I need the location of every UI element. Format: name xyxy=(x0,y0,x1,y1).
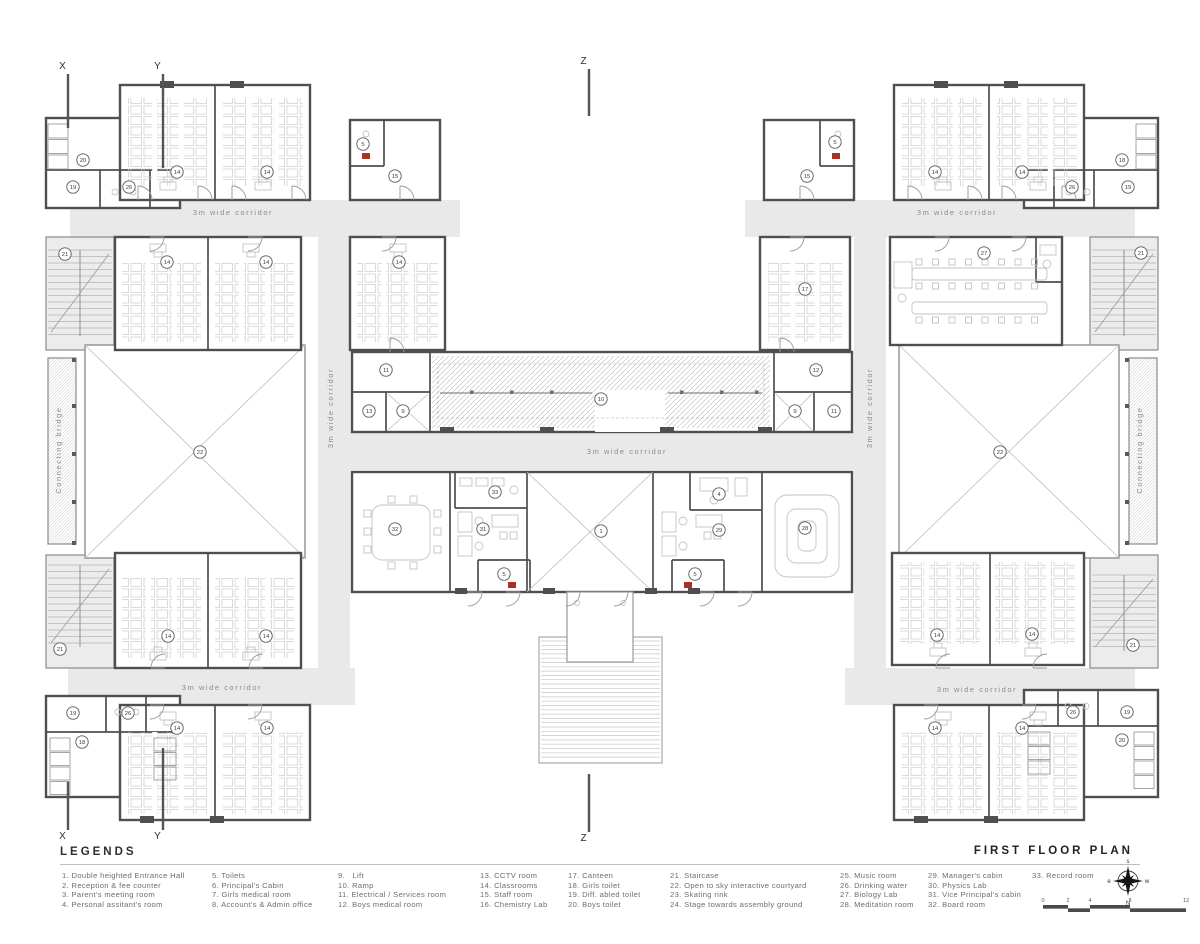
room-marker: 14 xyxy=(1016,166,1028,178)
room-marker: 1 xyxy=(595,525,607,537)
legend-item: 11. Electrical / Services room xyxy=(338,890,446,900)
svg-text:3m wide corridor: 3m wide corridor xyxy=(865,368,874,448)
svg-text:19: 19 xyxy=(1125,185,1132,191)
legend-item: 7. Girls medical room xyxy=(212,890,313,900)
legend-item: 20. Boys toilet xyxy=(568,900,641,910)
room-marker: 22 xyxy=(194,446,206,458)
room-marker: 15 xyxy=(801,170,813,182)
svg-text:31: 31 xyxy=(480,527,487,533)
svg-text:X: X xyxy=(59,61,67,72)
svg-text:21: 21 xyxy=(1130,643,1137,649)
room-marker: 11 xyxy=(380,364,392,376)
scale-bar: 024812 xyxy=(1041,898,1189,912)
svg-text:18: 18 xyxy=(79,740,86,746)
room-marker: 32 xyxy=(389,523,401,535)
room-marker: 26 xyxy=(1066,181,1078,193)
legend-column: 17. Canteen18. Girls toilet19. Diff. abl… xyxy=(568,871,641,909)
room-marker: 26 xyxy=(122,707,134,719)
legend-column: 5. Toilets6. Principal's Cabin7. Girls m… xyxy=(212,871,313,909)
room-marker: 19 xyxy=(67,707,79,719)
room-marker: 18 xyxy=(76,736,88,748)
svg-text:3m wide corridor: 3m wide corridor xyxy=(917,208,997,217)
svg-text:20: 20 xyxy=(80,158,87,164)
legend-item: 1. Double heighted Entrance Hall xyxy=(62,871,185,881)
svg-text:10: 10 xyxy=(598,397,605,403)
svg-text:3m wide corridor: 3m wide corridor xyxy=(193,208,273,217)
svg-text:11: 11 xyxy=(383,368,389,374)
svg-text:12: 12 xyxy=(1183,898,1189,904)
room-marker: 12 xyxy=(810,364,822,376)
legend-item: 8. Account's & Admin office xyxy=(212,900,313,910)
room-marker: 14 xyxy=(162,630,174,642)
svg-text:8: 8 xyxy=(1128,898,1131,904)
room-marker: 20 xyxy=(77,154,89,166)
floor-plan-drawing: 3m wide corridor3m wide corridor3m wide … xyxy=(0,0,1200,845)
room-marker: 5 xyxy=(498,568,510,580)
svg-text:14: 14 xyxy=(164,260,171,266)
legend-item: 19. Diff. abled toilet xyxy=(568,890,641,900)
courtyard-right xyxy=(899,345,1119,558)
room-marker: 21 xyxy=(54,643,66,655)
svg-text:3m wide corridor: 3m wide corridor xyxy=(937,685,1017,694)
legend-column: 13. CCTV room14. Classrooms15. Staff roo… xyxy=(480,871,548,909)
svg-text:14: 14 xyxy=(174,170,181,176)
svg-text:15: 15 xyxy=(804,174,811,180)
room-marker: 14 xyxy=(393,256,405,268)
svg-text:1: 1 xyxy=(599,529,602,535)
legend-panel: LEGENDS FIRST FLOOR PLAN 1. Double heigh… xyxy=(0,845,1200,944)
room-marker: 28 xyxy=(799,522,811,534)
room-marker: 31 xyxy=(477,523,489,535)
svg-text:19: 19 xyxy=(1124,710,1131,716)
svg-text:9: 9 xyxy=(401,409,404,415)
room-marker: 19 xyxy=(67,181,79,193)
svg-text:14: 14 xyxy=(934,633,941,639)
svg-text:4: 4 xyxy=(1088,898,1091,904)
room-marker: 26 xyxy=(1067,706,1079,718)
room-marker: 14 xyxy=(261,722,273,734)
room-marker: 27 xyxy=(978,247,990,259)
legend-item: 32. Board room xyxy=(928,900,1021,910)
room-marker: 17 xyxy=(799,283,811,295)
legend-item: 27. Biology Lab xyxy=(840,890,914,900)
room-marker: 14 xyxy=(171,722,183,734)
stage-steps xyxy=(539,592,662,763)
room-marker: 19 xyxy=(1121,706,1133,718)
svg-text:14: 14 xyxy=(396,260,403,266)
legend-item: 2. Reception & fee counter xyxy=(62,881,185,891)
svg-text:14: 14 xyxy=(264,170,271,176)
legend-item: 13. CCTV room xyxy=(480,871,548,881)
room-marker: 21 xyxy=(1127,639,1139,651)
room-marker: 21 xyxy=(1135,247,1147,259)
room-marker: 5 xyxy=(829,136,841,148)
svg-text:33: 33 xyxy=(492,490,499,496)
legend-column: 29. Manager's cabin30. Physics Lab31. Vi… xyxy=(928,871,1021,909)
legend-item: 24. Stage towards assembly ground xyxy=(670,900,807,910)
legend-item: 10. Ramp xyxy=(338,881,446,891)
svg-text:14: 14 xyxy=(1029,632,1036,638)
svg-text:18: 18 xyxy=(1119,158,1126,164)
room-marker: 15 xyxy=(389,170,401,182)
svg-text:14: 14 xyxy=(1019,170,1026,176)
room-marker: 13 xyxy=(363,405,375,417)
room-marker: 14 xyxy=(161,256,173,268)
legend-item: 5. Toilets xyxy=(212,871,313,881)
svg-text:14: 14 xyxy=(264,726,271,732)
svg-text:14: 14 xyxy=(1019,726,1026,732)
legend-item: 18. Girls toilet xyxy=(568,881,641,891)
svg-text:s: s xyxy=(1127,859,1130,865)
svg-text:12: 12 xyxy=(813,368,820,374)
room-marker: 14 xyxy=(931,629,943,641)
room-marker: 18 xyxy=(1116,154,1128,166)
legend-item: 16. Chemistry Lab xyxy=(480,900,548,910)
room-marker: 22 xyxy=(994,446,1006,458)
room-marker: 4 xyxy=(713,488,725,500)
svg-text:3m wide corridor: 3m wide corridor xyxy=(326,368,335,448)
svg-text:27: 27 xyxy=(981,251,988,257)
room-marker: 29 xyxy=(713,524,725,536)
svg-text:21: 21 xyxy=(1138,251,1145,257)
svg-text:14: 14 xyxy=(263,634,270,640)
svg-text:26: 26 xyxy=(125,711,132,717)
room-marker: 11 xyxy=(828,405,840,417)
svg-text:26: 26 xyxy=(126,185,133,191)
legend-item: 23. Skating rink xyxy=(670,890,807,900)
room-marker: 14 xyxy=(260,630,272,642)
room-marker: 9 xyxy=(397,405,409,417)
svg-text:Z: Z xyxy=(580,56,587,67)
svg-text:29: 29 xyxy=(716,528,723,534)
svg-text:21: 21 xyxy=(57,647,64,653)
legend-item: 26. Drinking water xyxy=(840,881,914,891)
room-marker: 20 xyxy=(1116,734,1128,746)
legend-item: 9. Lift xyxy=(338,871,446,881)
svg-text:Y: Y xyxy=(154,61,162,72)
legend-item: 22. Open to sky interactive courtyard xyxy=(670,881,807,891)
svg-text:19: 19 xyxy=(70,185,77,191)
legend-column: 25. Music room26. Drinking water27. Biol… xyxy=(840,871,914,909)
svg-text:13: 13 xyxy=(366,409,373,415)
room-marker: 5 xyxy=(357,138,369,150)
legend-item: 29. Manager's cabin xyxy=(928,871,1021,881)
svg-text:15: 15 xyxy=(392,174,399,180)
room-marker: 26 xyxy=(123,181,135,193)
room-marker: 5 xyxy=(689,568,701,580)
svg-text:Y: Y xyxy=(154,831,162,842)
legend-item: 6. Principal's Cabin xyxy=(212,881,313,891)
svg-text:w: w xyxy=(1144,879,1150,885)
svg-text:0: 0 xyxy=(1041,898,1044,904)
legend-item: 21. Staircase xyxy=(670,871,807,881)
legend-item: 15. Staff room xyxy=(480,890,548,900)
svg-text:28: 28 xyxy=(802,526,809,532)
room-marker: 14 xyxy=(1026,628,1038,640)
legend-item: 4. Personal assitant's room xyxy=(62,900,185,910)
legend-item: 31. Vice Principal's cabin xyxy=(928,890,1021,900)
room-marker: 14 xyxy=(260,256,272,268)
room-marker: 10 xyxy=(595,393,607,405)
svg-text:11: 11 xyxy=(831,409,837,415)
svg-text:21: 21 xyxy=(62,252,69,258)
legend-item: 30. Physics Lab xyxy=(928,881,1021,891)
svg-text:14: 14 xyxy=(932,726,939,732)
svg-text:22: 22 xyxy=(997,450,1004,456)
legend-item: 14. Classrooms xyxy=(480,881,548,891)
room-marker: 14 xyxy=(1016,722,1028,734)
north-and-scale: s e w N 024812 xyxy=(1030,853,1200,928)
svg-text:3m wide corridor: 3m wide corridor xyxy=(182,683,262,692)
legend-rule xyxy=(60,864,1140,865)
svg-text:9: 9 xyxy=(793,409,796,415)
legend-column: 9. Lift10. Ramp11. Electrical / Services… xyxy=(338,871,446,909)
svg-text:14: 14 xyxy=(174,726,181,732)
floor-plan-page: 3m wide corridor3m wide corridor3m wide … xyxy=(0,0,1200,944)
room-marker: 9 xyxy=(789,405,801,417)
svg-text:19: 19 xyxy=(70,711,77,717)
legend-item: 12. Boys medical room xyxy=(338,900,446,910)
room-marker: 14 xyxy=(929,722,941,734)
svg-text:Z: Z xyxy=(580,833,587,844)
svg-text:32: 32 xyxy=(392,527,399,533)
svg-text:26: 26 xyxy=(1069,185,1076,191)
legend-item: 28. Meditation room xyxy=(840,900,914,910)
svg-text:20: 20 xyxy=(1119,738,1126,744)
svg-text:e: e xyxy=(1107,879,1111,885)
svg-text:2: 2 xyxy=(1066,898,1069,904)
svg-text:3m wide corridor: 3m wide corridor xyxy=(587,447,667,456)
svg-text:26: 26 xyxy=(1070,710,1077,716)
room-marker: 33 xyxy=(489,486,501,498)
legend-column: 1. Double heighted Entrance Hall2. Recep… xyxy=(62,871,185,909)
legend-item: 17. Canteen xyxy=(568,871,641,881)
svg-text:Connecting bridge: Connecting bridge xyxy=(1135,406,1144,493)
room-marker: 21 xyxy=(59,248,71,260)
svg-text:14: 14 xyxy=(263,260,270,266)
room-marker: 14 xyxy=(171,166,183,178)
svg-text:17: 17 xyxy=(802,287,809,293)
room-marker: 14 xyxy=(929,166,941,178)
svg-text:14: 14 xyxy=(932,170,939,176)
svg-text:22: 22 xyxy=(197,450,204,456)
legend-column: 21. Staircase22. Open to sky interactive… xyxy=(670,871,807,909)
svg-text:14: 14 xyxy=(165,634,172,640)
svg-text:X: X xyxy=(59,831,67,842)
room-marker: 14 xyxy=(261,166,273,178)
legend-item: 25. Music room xyxy=(840,871,914,881)
room-marker: 19 xyxy=(1122,181,1134,193)
legend-heading: LEGENDS xyxy=(60,846,137,858)
svg-text:Connecting bridge: Connecting bridge xyxy=(54,406,63,493)
legend-item: 3. Parent's meeting room xyxy=(62,890,185,900)
